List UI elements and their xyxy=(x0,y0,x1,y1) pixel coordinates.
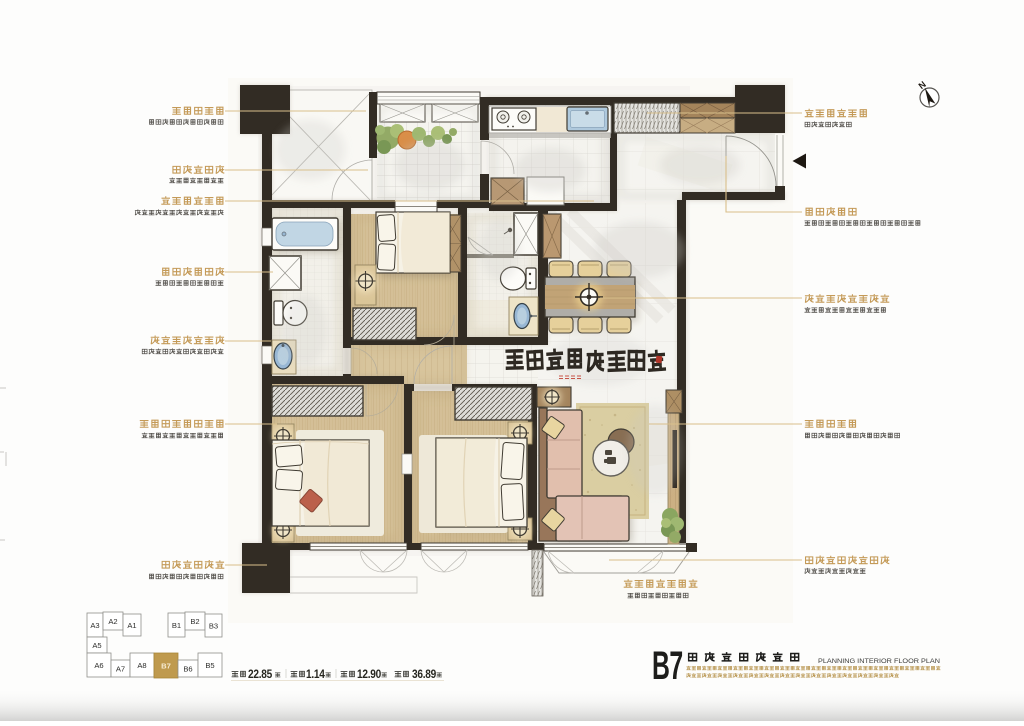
svg-text:A3: A3 xyxy=(90,621,99,630)
svg-text:B7: B7 xyxy=(161,661,171,670)
svg-text:A8: A8 xyxy=(137,661,146,670)
svg-text:A6: A6 xyxy=(94,661,103,670)
svg-text:22.85: 22.85 xyxy=(248,668,272,681)
svg-text:B3: B3 xyxy=(209,621,218,630)
svg-text:B7: B7 xyxy=(652,644,683,688)
svg-text:A5: A5 xyxy=(92,641,101,650)
svg-text:1.14: 1.14 xyxy=(306,668,325,681)
svg-text:B1: B1 xyxy=(172,621,181,630)
svg-text:PLANNING INTERIOR FLOOR PLAN: PLANNING INTERIOR FLOOR PLAN xyxy=(818,658,940,665)
svg-text:B6: B6 xyxy=(183,664,192,673)
svg-text:A2: A2 xyxy=(108,617,117,626)
svg-text:12.90: 12.90 xyxy=(357,668,381,681)
svg-text:36.89: 36.89 xyxy=(412,668,436,681)
svg-text:B5: B5 xyxy=(205,661,214,670)
svg-text:A1: A1 xyxy=(127,621,136,630)
svg-text:B2: B2 xyxy=(190,617,199,626)
svg-text:A7: A7 xyxy=(116,664,125,673)
